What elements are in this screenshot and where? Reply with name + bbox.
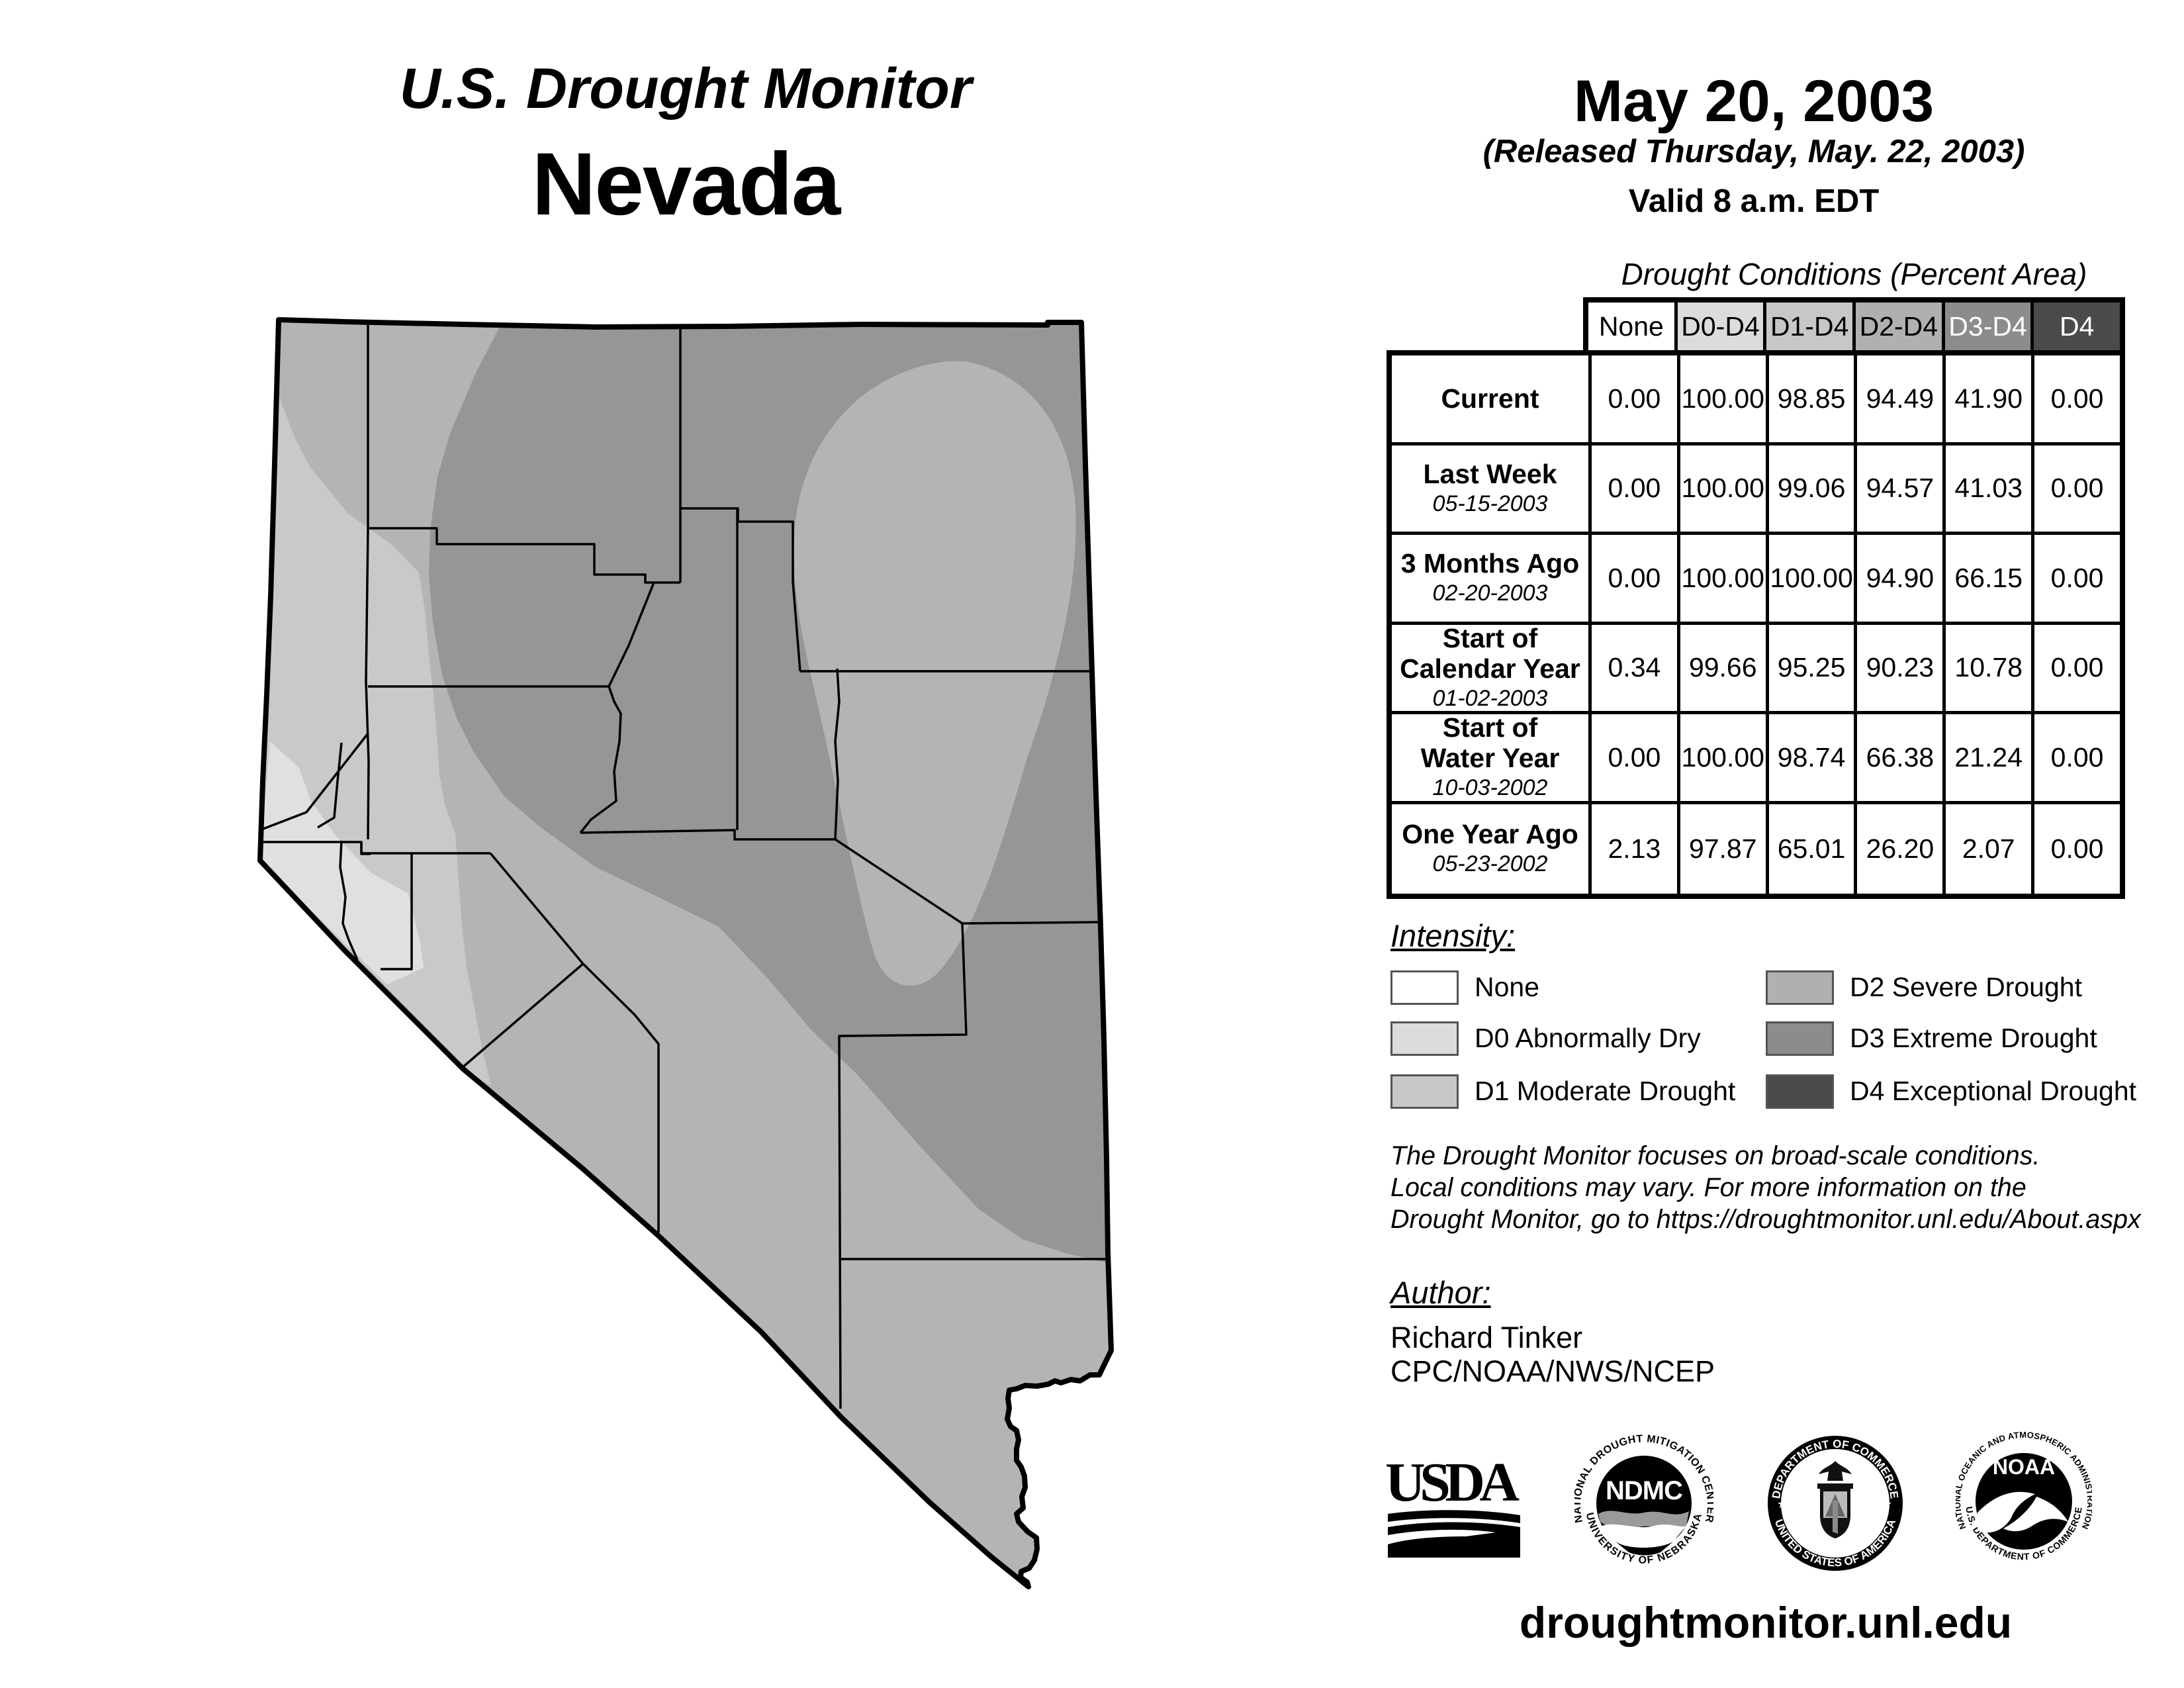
svg-text:★: ★ — [1777, 1497, 1788, 1511]
svg-text:★: ★ — [1882, 1497, 1892, 1511]
svg-text:NOAA: NOAA — [1993, 1455, 2055, 1479]
svg-text:NDMC: NDMC — [1606, 1476, 1682, 1505]
svg-text:USDA: USDA — [1387, 1453, 1520, 1513]
